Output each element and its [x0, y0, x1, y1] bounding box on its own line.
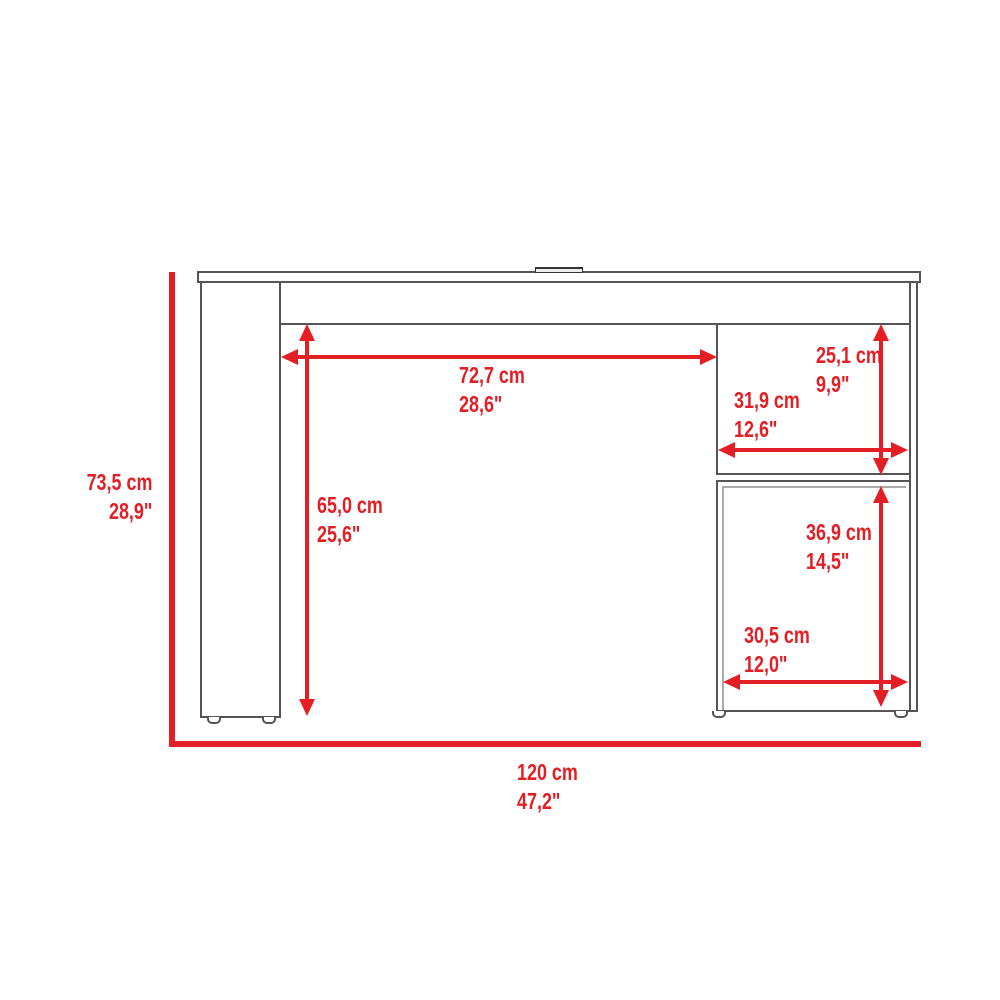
shelf-board-bottom-edge: [716, 480, 911, 482]
left-panel-foot: [262, 717, 276, 724]
dim-value-cm: 30,5 cm: [744, 621, 810, 650]
dim-label-lower-cabinet-width: 30,5 cm 12,0": [744, 621, 810, 679]
dim-value-cm: 72,7 cm: [459, 361, 525, 390]
arrowhead-left-icon: [718, 442, 735, 458]
dim-value-cm: 31,9 cm: [734, 386, 800, 415]
cable-grommet: [535, 267, 583, 273]
cabinet-foot: [894, 711, 908, 718]
overall-width-dimension-line: [169, 741, 921, 747]
dimension-line: [735, 680, 896, 684]
dimension-line: [879, 498, 883, 695]
left-panel-outer-edge: [200, 282, 202, 718]
left-panel-inner-edge: [279, 282, 281, 718]
dim-label-upper-shelf-height: 25,1 cm 9,9": [816, 341, 882, 399]
arrowhead-up-icon: [299, 324, 315, 341]
dimension-line: [730, 448, 896, 452]
apron-rail-line: [279, 323, 911, 325]
dim-value-cm: 120 cm: [517, 758, 578, 787]
arrowhead-up-icon: [873, 324, 889, 341]
dim-value-cm: 73,5 cm: [86, 468, 152, 497]
arrowhead-right-icon: [891, 442, 908, 458]
dim-label-upper-shelf-width: 31,9 cm 12,6": [734, 386, 800, 444]
dim-value-cm: 36,9 cm: [806, 518, 872, 547]
arrowhead-right-icon: [891, 674, 908, 690]
dim-label-kneehole-height: 65,0 cm 25,6": [317, 491, 383, 549]
dimension-diagram: 73,5 cm 28,9" 120 cm 47,2" 72,7 cm 28,6"…: [0, 0, 1000, 1000]
arrowhead-down-icon: [873, 458, 889, 475]
left-panel-foot: [207, 717, 221, 724]
arrowhead-up-icon: [873, 486, 889, 503]
dim-label-overall-width: 120 cm 47,2": [517, 758, 578, 816]
arrowhead-right-icon: [700, 349, 717, 365]
dim-value-inch: 28,9": [86, 497, 152, 526]
right-panel-outer-edge: [916, 282, 918, 712]
arrowhead-down-icon: [299, 699, 315, 716]
dim-label-lower-cabinet-height: 36,9 cm 14,5": [806, 518, 872, 576]
dimension-line: [305, 336, 309, 704]
cabinet-left-edge: [716, 480, 718, 712]
cabinet-bottom-edge: [716, 710, 918, 712]
dim-arrow-kneehole-height: [299, 324, 315, 716]
dim-arrow-upper-shelf-width: [718, 442, 908, 458]
dim-label-kneehole-width: 72,7 cm 28,6": [459, 361, 525, 419]
dim-value-inch: 47,2": [517, 787, 578, 816]
arrowhead-left-icon: [281, 349, 298, 365]
dimension-line: [293, 355, 705, 359]
dim-value-inch: 25,6": [317, 520, 383, 549]
overall-height-dimension-line: [169, 272, 175, 747]
cabinet-foot: [712, 711, 726, 718]
dim-value-inch: 12,0": [744, 650, 810, 679]
dim-label-overall-height: 73,5 cm 28,9": [86, 468, 152, 526]
dim-value-cm: 25,1 cm: [816, 341, 882, 370]
dim-value-inch: 14,5": [806, 547, 872, 576]
dim-value-inch: 12,6": [734, 415, 800, 444]
dim-value-inch: 28,6": [459, 390, 525, 419]
dim-value-cm: 65,0 cm: [317, 491, 383, 520]
right-panel-inner-edge: [909, 282, 911, 712]
dim-value-inch: 9,9": [816, 370, 882, 399]
arrowhead-down-icon: [873, 690, 889, 707]
arrowhead-left-icon: [723, 674, 740, 690]
